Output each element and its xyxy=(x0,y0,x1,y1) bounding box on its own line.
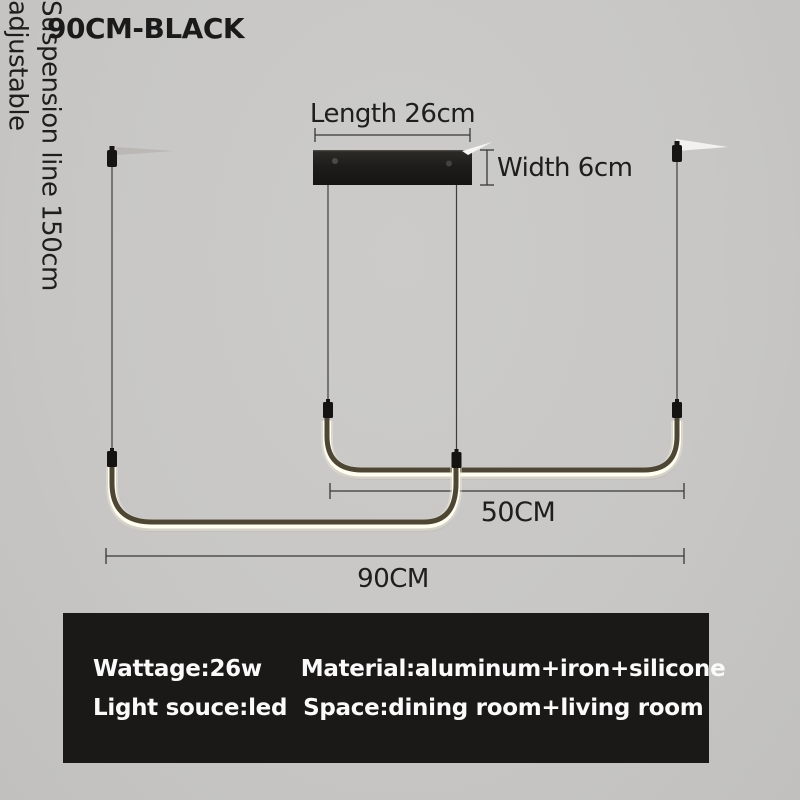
tube-connector-upper-left xyxy=(323,402,333,418)
ceiling-highlight-right xyxy=(676,139,728,151)
variant-title: 90CM-BLACK xyxy=(47,12,244,45)
tube-connectors xyxy=(107,399,682,468)
suspension-wires xyxy=(112,161,677,455)
dim-90cm-label: 90CM xyxy=(333,564,453,594)
spec-row-1: Wattage:26w Material:aluminum+iron+silic… xyxy=(93,656,709,682)
width-dimension-label: Width 6cm xyxy=(497,153,632,183)
tube-connector-middle xyxy=(452,452,462,468)
product-dimension-diagram: 90CM-BLACK Length 26cm Width 6cm Suspens… xyxy=(0,0,800,800)
length-dimension-label: Length 26cm xyxy=(290,99,495,129)
spec-box: Wattage:26w Material:aluminum+iron+silic… xyxy=(63,613,709,763)
tube-connector-upper-right xyxy=(672,402,682,418)
canopy-screw-left xyxy=(332,158,338,164)
dim-50cm-label: 50CM xyxy=(458,497,578,528)
dim-90cm-line xyxy=(106,548,684,564)
ceiling-fitting-left xyxy=(107,150,117,167)
spec-row-2: Light souce:led Space:dining room+living… xyxy=(93,695,709,721)
spec-material: Material:aluminum+iron+silicone xyxy=(301,656,726,682)
dimension-lines xyxy=(106,128,684,564)
spec-wattage: Wattage:26w xyxy=(93,656,262,682)
dim-width-line xyxy=(480,150,494,185)
light-tube-upper xyxy=(327,418,679,478)
ceiling-fitting-right xyxy=(672,145,682,162)
spec-light-source: Light souce:led xyxy=(93,695,287,721)
ceiling-canopy xyxy=(313,150,472,185)
ceiling-shadow-left xyxy=(116,147,174,155)
dim-length-line xyxy=(315,128,470,142)
canopy-screw-right xyxy=(446,161,452,167)
tube-connector-left xyxy=(107,451,117,467)
spec-space: Space:dining room+living room xyxy=(303,695,703,721)
